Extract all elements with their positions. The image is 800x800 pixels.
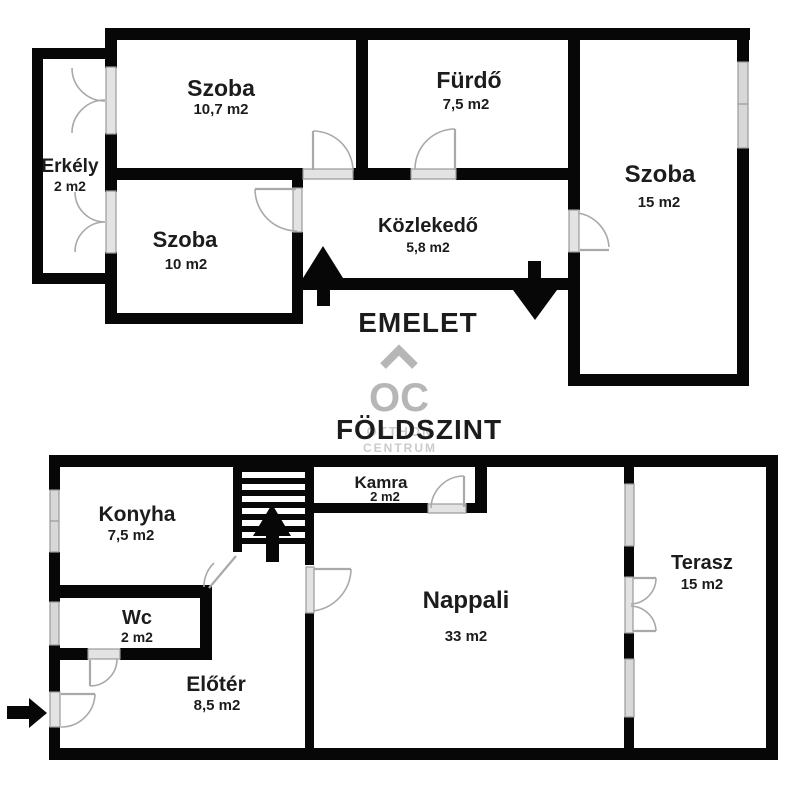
- floor-emelet: Szoba 10,7 m2 Fürdő 7,5 m2 Szoba 15 m2 E…: [32, 28, 750, 386]
- wall-segment: [305, 455, 314, 565]
- wall-segment: [568, 374, 749, 386]
- room-area-szoba-2: 15 m2: [638, 194, 681, 211]
- house-roof-icon: [383, 350, 415, 366]
- wall-segment: [233, 455, 242, 552]
- wall-segment: [624, 717, 634, 748]
- room-label-eloter: Előtér: [186, 673, 246, 696]
- door-arc: [72, 100, 105, 133]
- window: [625, 659, 634, 717]
- arrow-stem: [528, 261, 541, 291]
- room-label-nappali: Nappali: [423, 587, 510, 614]
- stair-tread: [242, 466, 305, 472]
- terrace-door: [625, 577, 633, 633]
- balcony-door: [106, 191, 116, 253]
- wall-segment: [105, 133, 117, 192]
- room-area-kozlekedo: 5,8 m2: [406, 239, 450, 255]
- door-arc: [75, 222, 105, 252]
- wall-segment: [49, 455, 60, 490]
- door-arc: [415, 129, 455, 169]
- wall-segment: [49, 648, 88, 660]
- door-arc: [631, 606, 656, 631]
- door-arc: [75, 192, 105, 222]
- wall-segment: [105, 168, 303, 180]
- door-arc: [313, 569, 351, 611]
- floor-title-emelet: EMELET: [358, 307, 478, 338]
- wall-segment: [475, 455, 487, 513]
- stair-tread: [242, 478, 305, 484]
- arrow-stem: [7, 706, 29, 719]
- room-area-terasz: 15 m2: [681, 576, 724, 593]
- wall-segment: [292, 168, 303, 188]
- door-sill: [411, 169, 456, 179]
- wall-segment: [49, 585, 212, 598]
- window: [50, 602, 59, 645]
- room-label-szoba-3: Szoba: [153, 227, 219, 252]
- wall-segment: [624, 455, 634, 484]
- wall-segment: [568, 40, 580, 210]
- arrow-stem: [266, 536, 279, 562]
- wall-segment: [32, 273, 108, 284]
- floor-plan-canvas: Szoba 10,7 m2 Fürdő 7,5 m2 Szoba 15 m2 E…: [0, 0, 800, 800]
- stairs-up-arrow: [253, 504, 291, 562]
- door-sill: [293, 188, 302, 232]
- room-area-wc: 2 m2: [121, 629, 153, 645]
- wall-segment: [105, 313, 303, 324]
- wall-segment: [356, 40, 368, 168]
- wall-segment: [105, 28, 750, 40]
- door-leaf: [209, 556, 236, 588]
- room-area-kamra: 2 m2: [370, 489, 400, 504]
- wall-segment: [49, 455, 778, 467]
- room-label-konyha: Konyha: [98, 503, 175, 526]
- room-label-wc: Wc: [122, 607, 152, 629]
- stairs-down-arrow: [513, 261, 557, 320]
- arrow-head: [303, 246, 343, 278]
- room-area-szoba-1: 10,7 m2: [193, 101, 248, 118]
- window: [625, 484, 634, 546]
- stair-tread: [242, 490, 305, 496]
- door-sill: [428, 504, 466, 513]
- room-label-szoba-2: Szoba: [625, 161, 696, 188]
- door-sill: [569, 210, 579, 252]
- door-arc: [255, 189, 297, 231]
- door-arc: [61, 694, 95, 727]
- door-arc: [313, 131, 353, 171]
- wall-segment: [737, 28, 749, 62]
- arrow-head: [513, 290, 557, 320]
- wall-segment: [49, 727, 60, 760]
- door-arc: [631, 578, 656, 604]
- wall-segment: [456, 168, 580, 180]
- room-area-furdo: 7,5 m2: [443, 96, 490, 113]
- room-label-furdo: Fürdő: [436, 67, 501, 93]
- room-area-eloter: 8,5 m2: [194, 697, 241, 714]
- door-sill: [306, 567, 314, 613]
- floor-foldszint: FÖLDSZINT: [7, 414, 778, 760]
- door-sill: [303, 169, 353, 179]
- balcony-door: [106, 67, 116, 134]
- door-sill: [88, 649, 120, 659]
- entrance-arrow: [7, 698, 47, 728]
- entrance-door: [50, 692, 60, 727]
- wall-segment: [32, 48, 108, 59]
- room-label-erkely: Erkély: [41, 156, 98, 177]
- window: [738, 62, 748, 148]
- door-arc: [431, 476, 464, 508]
- room-label-szoba-1: Szoba: [187, 75, 255, 101]
- room-label-terasz: Terasz: [671, 552, 733, 574]
- wall-segment: [624, 546, 634, 577]
- arrow-head: [29, 698, 47, 728]
- floor-title-foldszint: FÖLDSZINT: [336, 414, 502, 445]
- floor-plan-page: Szoba 10,7 m2 Fürdő 7,5 m2 Szoba 15 m2 E…: [0, 0, 800, 800]
- door-arc: [578, 213, 609, 247]
- wall-segment: [737, 148, 749, 386]
- wall-segment: [353, 168, 411, 180]
- wall-segment: [305, 613, 314, 748]
- wall-segment: [766, 455, 778, 760]
- room-label-kozlekedo: Közlekedő: [378, 215, 478, 237]
- wall-segment: [624, 633, 634, 659]
- door-arc: [72, 68, 105, 101]
- door-arc: [90, 659, 117, 686]
- room-area-szoba-3: 10 m2: [165, 256, 208, 273]
- wall-segment: [49, 748, 778, 760]
- room-area-nappali: 33 m2: [445, 628, 488, 645]
- room-area-erkely: 2 m2: [54, 178, 86, 194]
- arrow-stem: [317, 278, 330, 306]
- room-area-konyha: 7,5 m2: [108, 527, 155, 544]
- wall-segment: [120, 648, 212, 660]
- wall-segment: [568, 252, 580, 386]
- wall-segment: [313, 503, 428, 513]
- stairs-up-arrow: [303, 246, 343, 306]
